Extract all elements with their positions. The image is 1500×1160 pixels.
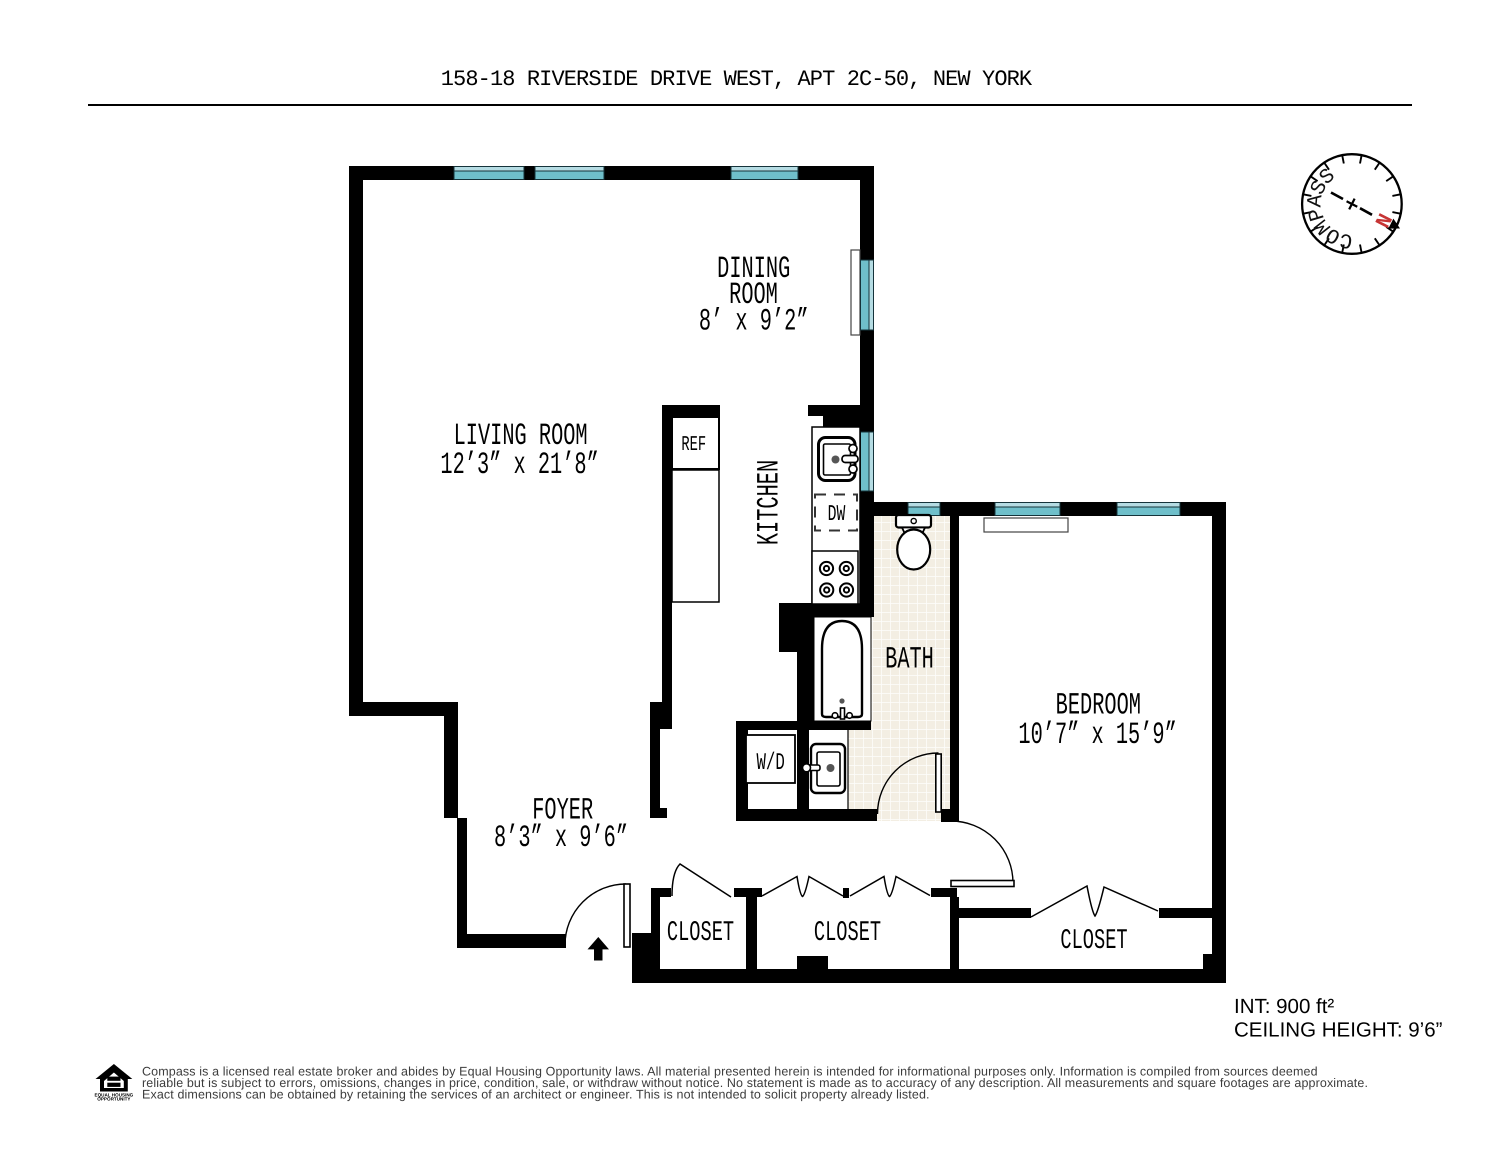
svg-text:REF: REF [681, 434, 706, 457]
svg-text:12’3” x 21’8”: 12’3” x 21’8” [440, 448, 598, 483]
svg-text:BATH: BATH [885, 643, 934, 678]
svg-text:8’ x 9’2”: 8’ x 9’2” [699, 305, 809, 340]
svg-text:158-18 RIVERSIDE DRIVE WEST, A: 158-18 RIVERSIDE DRIVE WEST, APT 2C-50, … [441, 67, 1033, 92]
svg-text:W/D: W/D [756, 750, 784, 777]
svg-text:Exact dimensions can be obtain: Exact dimensions can be obtained by reta… [142, 1088, 930, 1102]
svg-text:KITCHEN: KITCHEN [753, 460, 788, 545]
svg-text:CLOSET: CLOSET [1060, 924, 1127, 957]
svg-text:DW: DW [828, 501, 846, 527]
svg-text:8’3” x 9’6”: 8’3” x 9’6” [494, 821, 628, 856]
svg-text:CEILING HEIGHT: 9’6”: CEILING HEIGHT: 9’6” [1234, 1019, 1443, 1042]
svg-text:OPPORTUNITY: OPPORTUNITY [97, 1096, 130, 1101]
svg-text:CLOSET: CLOSET [667, 916, 734, 949]
svg-text:CLOSET: CLOSET [814, 916, 881, 949]
svg-text:10’7” x 15’9”: 10’7” x 15’9” [1018, 718, 1176, 753]
svg-text:INT: 900 ft²: INT: 900 ft² [1234, 995, 1334, 1018]
